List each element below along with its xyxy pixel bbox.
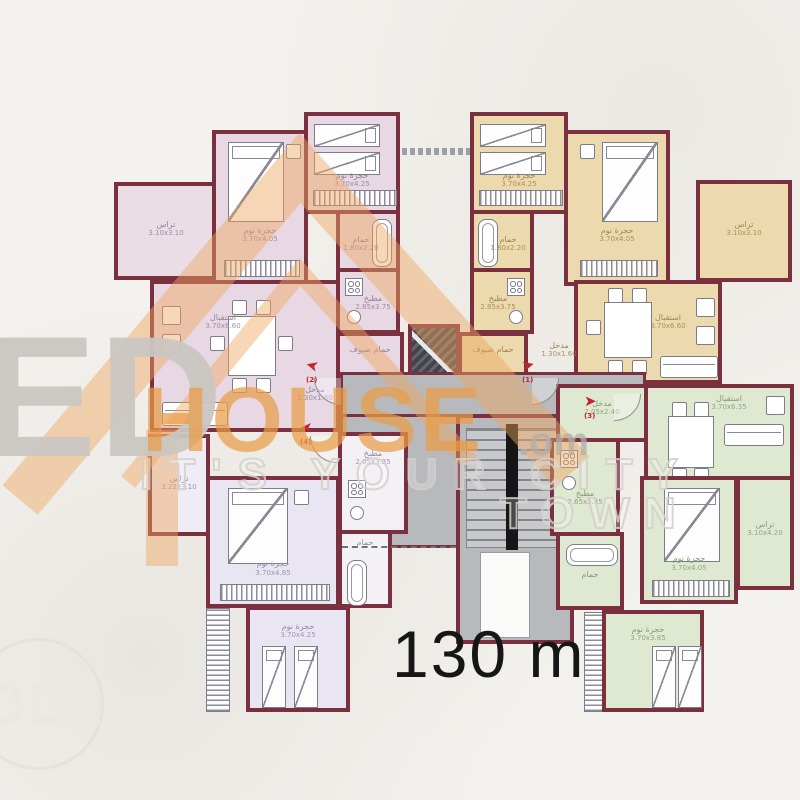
bathtub-icon xyxy=(566,544,618,566)
nightstand-icon xyxy=(580,144,595,159)
chair-icon xyxy=(278,336,293,351)
room-dims: 3.70x4.05 xyxy=(568,235,666,243)
dining-table-icon xyxy=(604,302,652,358)
open-boundary-dashed xyxy=(342,546,456,548)
room-dims: 3.10x3.10 xyxy=(700,229,788,237)
dining-table-icon xyxy=(668,416,714,468)
room-dims: 3.70x4.85 xyxy=(210,569,336,577)
vent-deco xyxy=(402,148,472,155)
room-kitchen-top-right: مطبخ2.85x3.75 xyxy=(470,268,534,334)
wardrobe-icon xyxy=(479,190,563,206)
stove-icon xyxy=(345,278,363,296)
room-label: استقبال xyxy=(716,394,742,403)
door-arc xyxy=(310,436,337,463)
room-dims: 2.65x3.35 xyxy=(342,458,404,466)
sink-icon xyxy=(347,310,361,324)
wardrobe-icon xyxy=(220,584,330,601)
double-bed-icon xyxy=(228,488,288,564)
chair-icon xyxy=(632,288,647,303)
stove-icon xyxy=(348,480,366,498)
sofa-icon xyxy=(660,356,718,378)
chair-icon xyxy=(672,402,687,417)
single-bed-icon xyxy=(262,646,286,708)
room-label: حمام xyxy=(500,235,517,244)
room-label: مطبخ xyxy=(364,294,382,303)
olx-logo-text: OLX xyxy=(0,672,103,737)
sofa-icon xyxy=(724,424,784,446)
room-bath-top-right: حمام1.80x2.20 xyxy=(470,210,534,272)
entrance-arrow-icon: ➤ xyxy=(584,394,597,409)
sink-icon xyxy=(562,476,576,490)
room-bath-top-left: حمام1.80x2.20 xyxy=(336,210,400,272)
armchair-icon xyxy=(162,306,181,325)
dining-table-icon xyxy=(228,316,276,376)
single-bed-icon xyxy=(678,646,702,708)
stair-rail-icon xyxy=(506,424,518,550)
room-label: مطبخ xyxy=(364,449,382,458)
room-label: حمام ضيوف xyxy=(472,345,513,354)
room-label: حجرة نوم xyxy=(244,226,277,235)
room-dims: 3.10x4.20 xyxy=(740,529,790,537)
room-dims: 3.70x4.05 xyxy=(644,564,734,572)
room-dims: 3.70x4.25 xyxy=(474,180,564,188)
room-bedroom2-bottom-left: حجرة نوم3.70x4.25 xyxy=(246,606,350,712)
room-dims: 3.70x4.25 xyxy=(308,180,396,188)
double-bed-icon xyxy=(602,142,658,222)
room-bedroom2-top-right: حجرة نوم3.70x4.25 xyxy=(470,112,568,214)
single-bed-icon xyxy=(294,646,318,708)
room-label: حجرة نوم xyxy=(282,622,315,631)
room-bedroom2-bottom-right: حجرة نوم3.70x3.85 xyxy=(602,610,704,712)
room-bath-bottom-right: حمام xyxy=(556,532,624,610)
room-bedroom1-top-left: حجرة نوم3.70x4.05 xyxy=(212,130,308,286)
armchair-icon xyxy=(696,298,715,317)
wardrobe-icon xyxy=(224,260,300,277)
room-label: حمام xyxy=(582,570,599,579)
entrance-arrow-icon: ➤ xyxy=(520,357,536,375)
double-bed-icon xyxy=(664,488,720,562)
room-label: مطبخ xyxy=(489,294,507,303)
chair-icon xyxy=(256,300,271,315)
room-living-bottom-right: استقبال3.70x6.35 xyxy=(644,384,794,484)
double-bed-icon xyxy=(228,142,284,222)
chair-icon xyxy=(694,402,709,417)
room-label: تراس xyxy=(735,220,754,229)
room-label: حجرة نوم xyxy=(632,625,665,634)
room-dims: 3.10x3.10 xyxy=(118,229,214,237)
room-label: حمام xyxy=(353,235,370,244)
sink-icon xyxy=(509,310,523,324)
room-terrace-bottom-left: تراس3.22x3.10 xyxy=(148,434,210,536)
room-bedroom1-bottom-right: حجرة نوم3.70x4.05 xyxy=(640,476,738,604)
chair-icon xyxy=(232,300,247,315)
room-dims: 3.70x3.85 xyxy=(596,634,700,642)
room-bath-bottom-left: حمام xyxy=(338,530,392,608)
sink-icon xyxy=(350,506,364,520)
room-label: استقبال xyxy=(655,313,681,322)
room-label: تراس xyxy=(157,220,176,229)
room-terrace-bottom-right: تراس3.10x4.20 xyxy=(736,476,794,590)
chair-icon xyxy=(608,288,623,303)
entrance-arrow-icon: ➤ xyxy=(300,420,313,435)
bathtub-icon xyxy=(478,219,498,267)
single-bed-icon xyxy=(314,152,380,175)
entrance-number: (3) xyxy=(584,412,595,420)
single-bed-icon xyxy=(480,124,546,147)
room-kitchen-bottom-left: مطبخ2.65x3.35 xyxy=(338,432,408,534)
nightstand-icon xyxy=(286,144,301,159)
room-dims: 2.85x3.75 xyxy=(466,303,530,311)
single-bed-icon xyxy=(314,124,380,147)
armchair-icon xyxy=(162,334,181,353)
room-terrace-top-left: تراس3.10x3.10 xyxy=(114,182,218,280)
room-dims: 2.65x3.35 xyxy=(554,498,616,506)
closet-icon xyxy=(206,608,230,712)
entrance-number: (4) xyxy=(300,438,311,446)
room-hall-bottom-right: مدخل2.05x2.40 xyxy=(556,384,648,442)
room-bedroom2-top-left: حجرة نوم3.70x4.25 xyxy=(304,112,400,214)
olx-logo-circle xyxy=(0,638,104,770)
single-bed-icon xyxy=(480,152,546,175)
area-size-label: 130 m xyxy=(392,616,585,692)
closet-icon xyxy=(584,612,604,712)
entrance-number: (1) xyxy=(522,376,533,384)
single-bed-icon xyxy=(652,646,676,708)
bathtub-icon xyxy=(347,560,367,606)
room-bedroom1-top-right: حجرة نوم3.70x4.05 xyxy=(564,130,670,286)
stove-icon xyxy=(560,450,578,468)
room-dims: 3.70x6.60 xyxy=(110,322,336,330)
room-dims: 3.70x4.25 xyxy=(250,631,346,639)
wardrobe-icon xyxy=(313,190,397,206)
room-kitchen-top-left: مطبخ2.85x3.75 xyxy=(336,268,400,334)
room-terrace-top-right: تراس3.10x3.10 xyxy=(696,180,792,282)
wardrobe-icon xyxy=(580,260,658,277)
room-bedroom1-bottom-left: حجرة نوم3.70x4.85 xyxy=(206,476,340,608)
armchair-icon xyxy=(696,326,715,345)
floor-plan-image: تراس3.10x3.10 حجرة نوم3.70x4.05 حجرة نوم… xyxy=(0,0,800,800)
chair-icon xyxy=(210,336,225,351)
chair-icon xyxy=(586,320,601,335)
room-living-top-right: استقبال3.70x6.60 xyxy=(574,280,722,384)
room-kitchen-bottom-right: مطبخ2.65x3.35 xyxy=(550,438,620,536)
room-dims: 3.22x3.10 xyxy=(152,483,206,491)
chair-icon xyxy=(256,378,271,393)
stove-icon xyxy=(507,278,525,296)
bathtub-icon xyxy=(372,219,392,267)
room-label: حمام ضيوف xyxy=(349,345,390,354)
nightstand-icon xyxy=(294,490,309,505)
wardrobe-icon xyxy=(652,580,730,597)
sofa-icon xyxy=(162,402,228,426)
chair-icon xyxy=(232,378,247,393)
room-label: حجرة نوم xyxy=(601,226,634,235)
room-label: تراس xyxy=(170,474,189,483)
room-label: مطبخ xyxy=(576,489,594,498)
room-dims: 3.70x4.05 xyxy=(216,235,304,243)
armchair-icon xyxy=(766,396,785,415)
room-label: تراس xyxy=(756,520,775,529)
entrance-number: (2) xyxy=(306,376,317,384)
